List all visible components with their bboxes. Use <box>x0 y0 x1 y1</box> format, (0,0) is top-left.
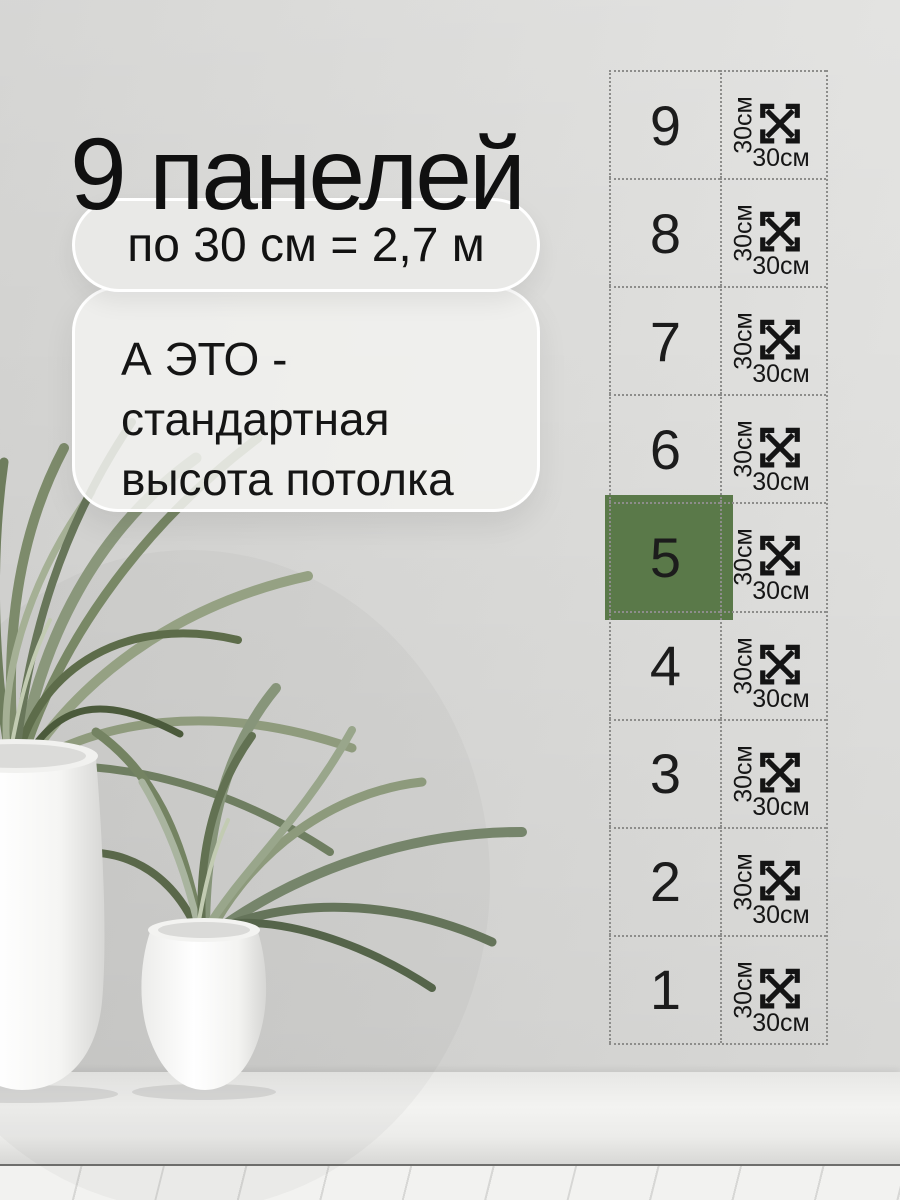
panel-width-label: 30см <box>736 144 826 173</box>
panel-size-cell: 30см 30см <box>720 611 826 719</box>
panel-size-cell: 30см 30см <box>720 827 826 935</box>
panel-number: 7 <box>650 309 681 374</box>
panel-width-label: 30см <box>736 901 826 930</box>
panel-width-label: 30см <box>736 793 826 822</box>
diagonal-resize-arrows-icon <box>757 533 803 579</box>
panel-number-cell: 6 <box>609 394 720 502</box>
note-line: высота потолка <box>121 449 537 509</box>
diagonal-resize-arrows-icon <box>757 101 803 147</box>
panel-number: 8 <box>650 201 681 266</box>
panel-width-label: 30см <box>736 577 826 606</box>
panel-number-cell: 1 <box>609 935 720 1043</box>
panel-number: 4 <box>650 633 681 698</box>
panel-number-cell: 7 <box>609 286 720 394</box>
panel-number-cell: 2 <box>609 827 720 935</box>
panel-row: 7 30см 30см <box>609 286 826 394</box>
panel-row: 6 30см 30см <box>609 394 826 502</box>
panel-row: 3 30см 30см <box>609 719 826 827</box>
panel-width-label: 30см <box>736 252 826 281</box>
panel-row: 9 30см 30см <box>609 70 826 178</box>
panel-size-cell: 30см 30см <box>720 178 826 286</box>
diagonal-resize-arrows-icon <box>757 641 803 687</box>
panel-size-cell: 30см 30см <box>720 394 826 502</box>
panel-row: 2 30см 30см <box>609 827 826 935</box>
panel-row: 5 30см 30см <box>609 502 826 610</box>
panel-row: 1 30см 30см <box>609 935 826 1043</box>
panel-number: 9 <box>650 93 681 158</box>
diagonal-resize-arrows-icon <box>757 317 803 363</box>
panel-number: 5 <box>650 525 681 590</box>
diagonal-resize-arrows-icon <box>757 209 803 255</box>
panel-row: 4 30см 30см <box>609 611 826 719</box>
panel-number-cell: 9 <box>609 70 720 178</box>
panel-number-cell: 4 <box>609 611 720 719</box>
note-line: А ЭТО - <box>121 329 537 389</box>
diagonal-resize-arrows-icon <box>757 425 803 471</box>
page-title: 9 панелей <box>70 116 523 233</box>
panel-size-cell: 30см 30см <box>720 502 826 610</box>
panel-size-cell: 30см 30см <box>720 935 826 1043</box>
plant-illustration <box>0 400 560 1200</box>
panel-row: 8 30см 30см <box>609 178 826 286</box>
product-infographic: 9 панелей А ЭТО - стандартная высота пот… <box>0 0 900 1200</box>
panel-number: 1 <box>650 957 681 1022</box>
note-line: стандартная <box>121 389 537 449</box>
panel-number-cell: 3 <box>609 719 720 827</box>
panel-number: 2 <box>650 849 681 914</box>
panel-width-label: 30см <box>736 685 826 714</box>
panel-size-cell: 30см 30см <box>720 286 826 394</box>
panel-grid: 9 30см 30см 8 30см <box>609 70 828 1045</box>
panel-number: 6 <box>650 417 681 482</box>
panel-number: 3 <box>650 741 681 806</box>
diagonal-resize-arrows-icon <box>757 857 803 903</box>
panel-number-cell: 5 <box>609 502 720 610</box>
panel-width-label: 30см <box>736 1009 826 1038</box>
panel-size-cell: 30см 30см <box>720 719 826 827</box>
panel-width-label: 30см <box>736 360 826 389</box>
diagonal-resize-arrows-icon <box>757 966 803 1012</box>
panel-size-cell: 30см 30см <box>720 70 826 178</box>
callout-note: А ЭТО - стандартная высота потолка <box>72 286 540 512</box>
panel-number-cell: 8 <box>609 178 720 286</box>
diagonal-resize-arrows-icon <box>757 749 803 795</box>
panel-width-label: 30см <box>736 468 826 497</box>
